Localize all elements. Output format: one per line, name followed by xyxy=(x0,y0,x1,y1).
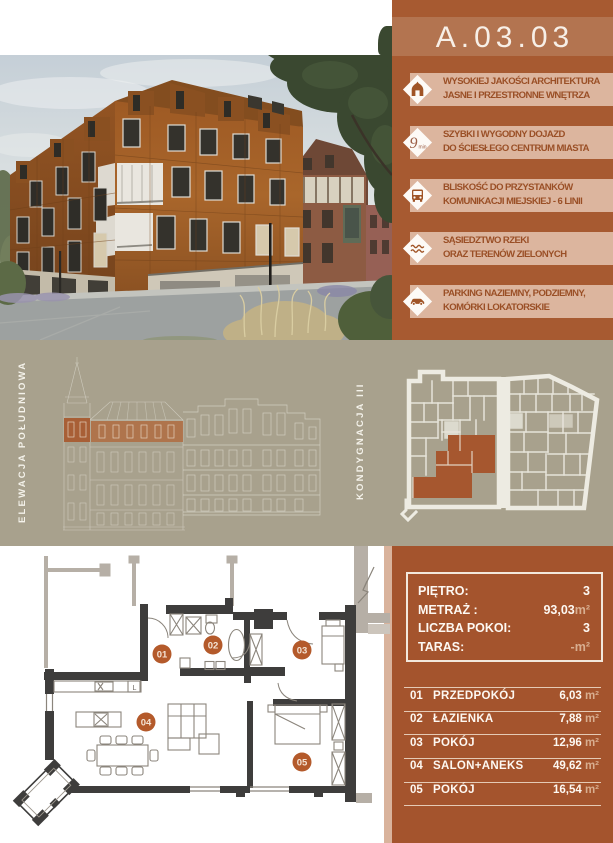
svg-text:04: 04 xyxy=(141,718,152,729)
svg-text:9: 9 xyxy=(410,135,418,152)
svg-text:05: 05 xyxy=(297,758,308,769)
svg-text:02: 02 xyxy=(208,641,219,652)
svg-text:01: 01 xyxy=(157,650,168,661)
svg-text:L: L xyxy=(133,685,137,692)
svg-text:min: min xyxy=(419,145,427,151)
svg-text:03: 03 xyxy=(297,646,308,657)
